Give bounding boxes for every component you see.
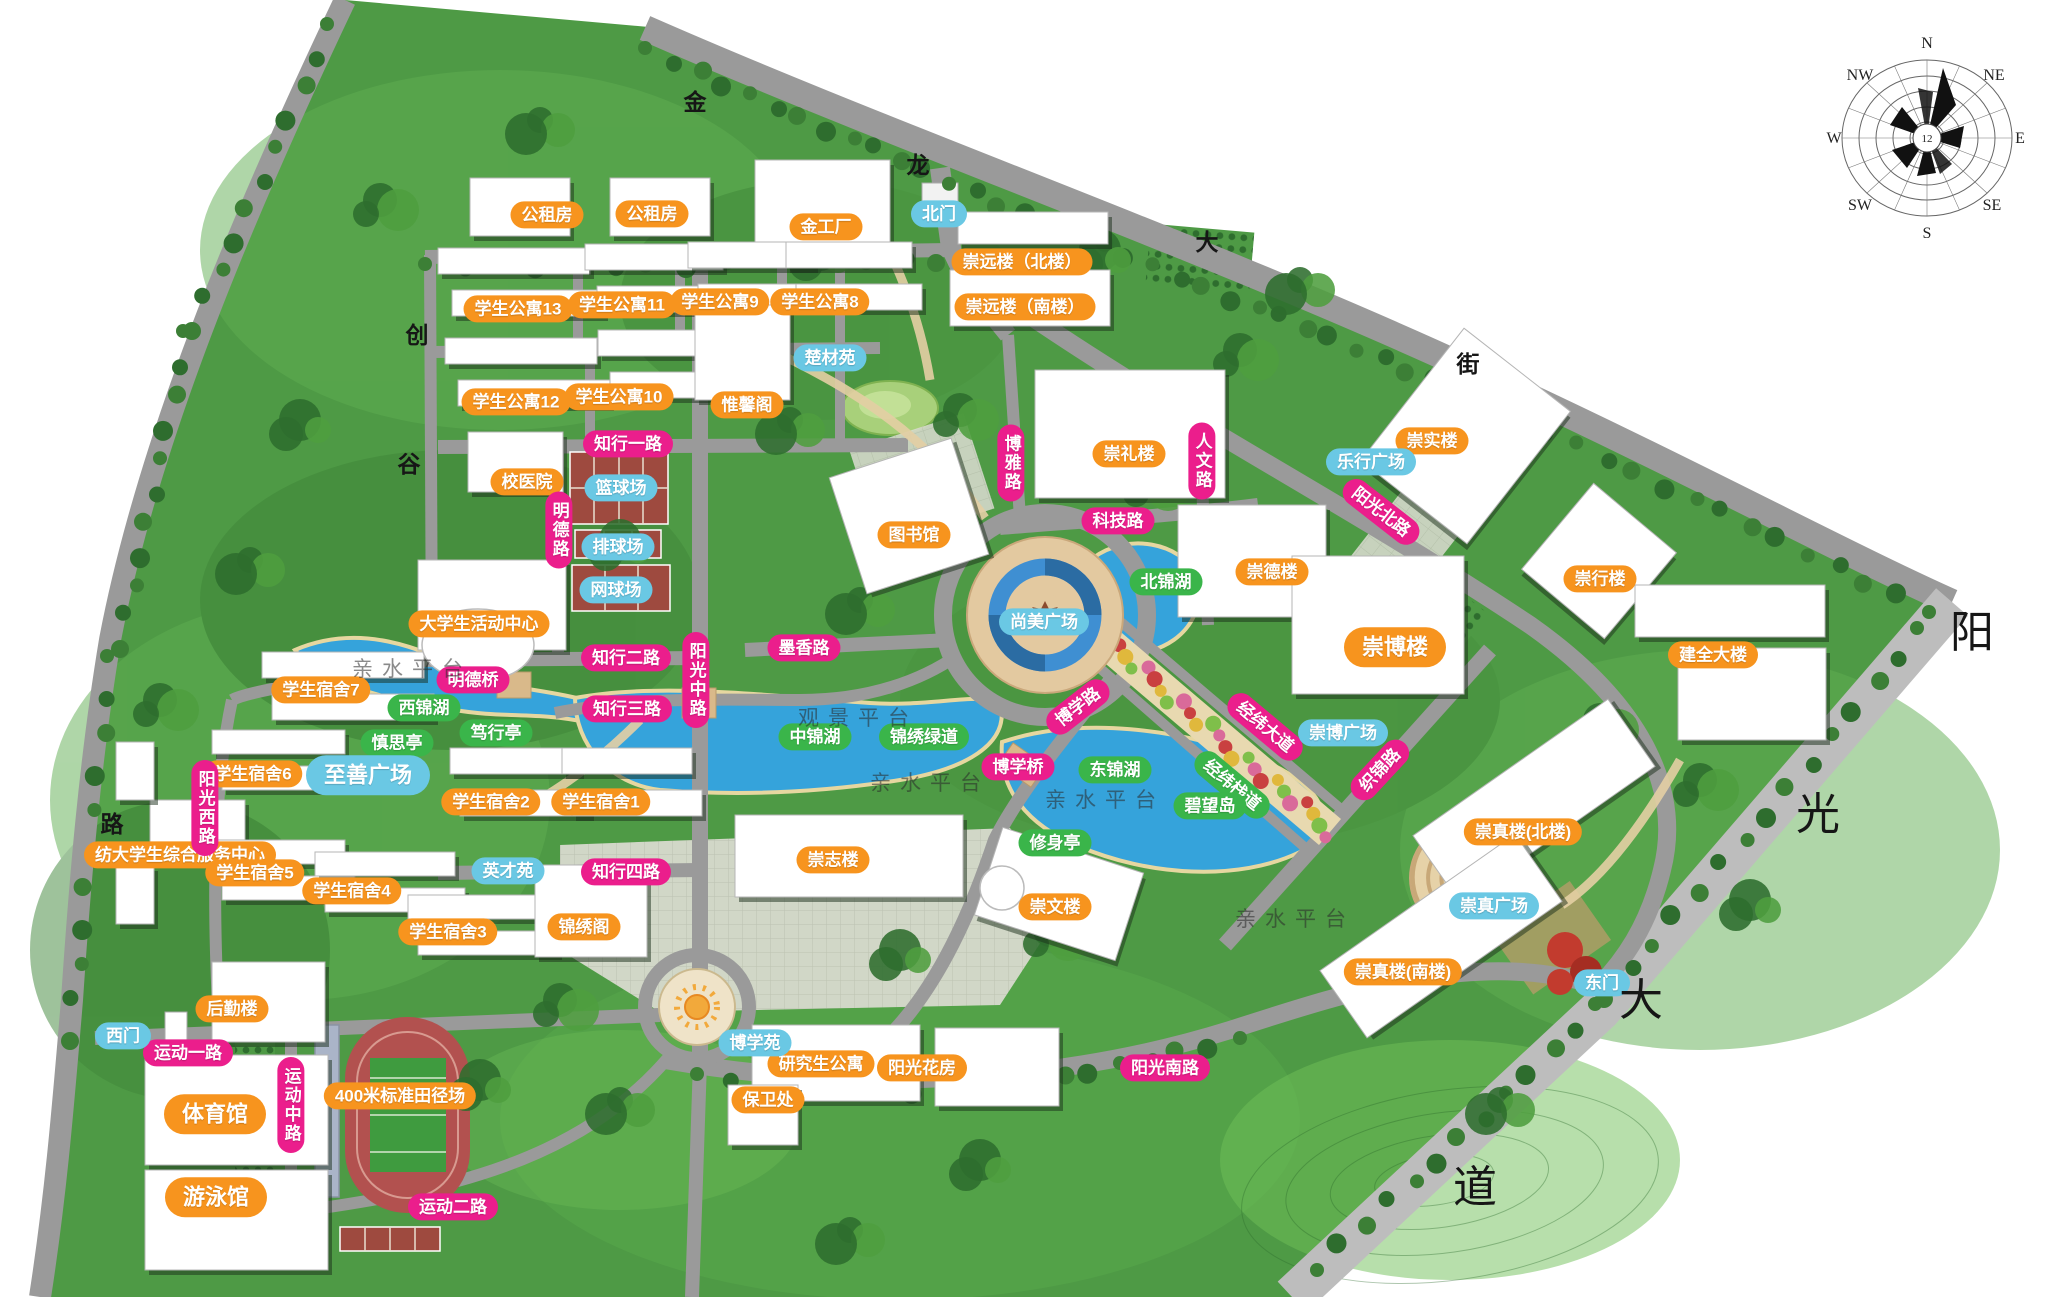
compass-s: S	[1923, 225, 1932, 242]
compass-ne: NE	[1983, 67, 2004, 84]
compass-rose: 12 N NE E SE S SW W NW	[1822, 30, 2032, 246]
compass-e: E	[2015, 130, 2025, 147]
compass-w: W	[1826, 130, 1842, 147]
sun-roundabout	[659, 969, 735, 1045]
compass-center-value: 12	[1922, 133, 1933, 145]
campus-map: 公租房公租房金工厂学生公寓13学生公寓11学生公寓9学生公寓8崇远楼（北楼）崇远…	[0, 0, 2048, 1297]
athletics-track	[315, 1017, 470, 1213]
compass-n: N	[1921, 35, 1933, 52]
compass-se: SE	[1983, 197, 2002, 214]
compass-sw: SW	[1848, 197, 1873, 214]
compass-nw: NW	[1847, 67, 1875, 84]
zhongjin-bridge	[682, 688, 716, 718]
west-gate	[165, 1012, 187, 1058]
map-graphics	[0, 0, 2048, 1297]
shangmei-plaza	[967, 537, 1123, 693]
